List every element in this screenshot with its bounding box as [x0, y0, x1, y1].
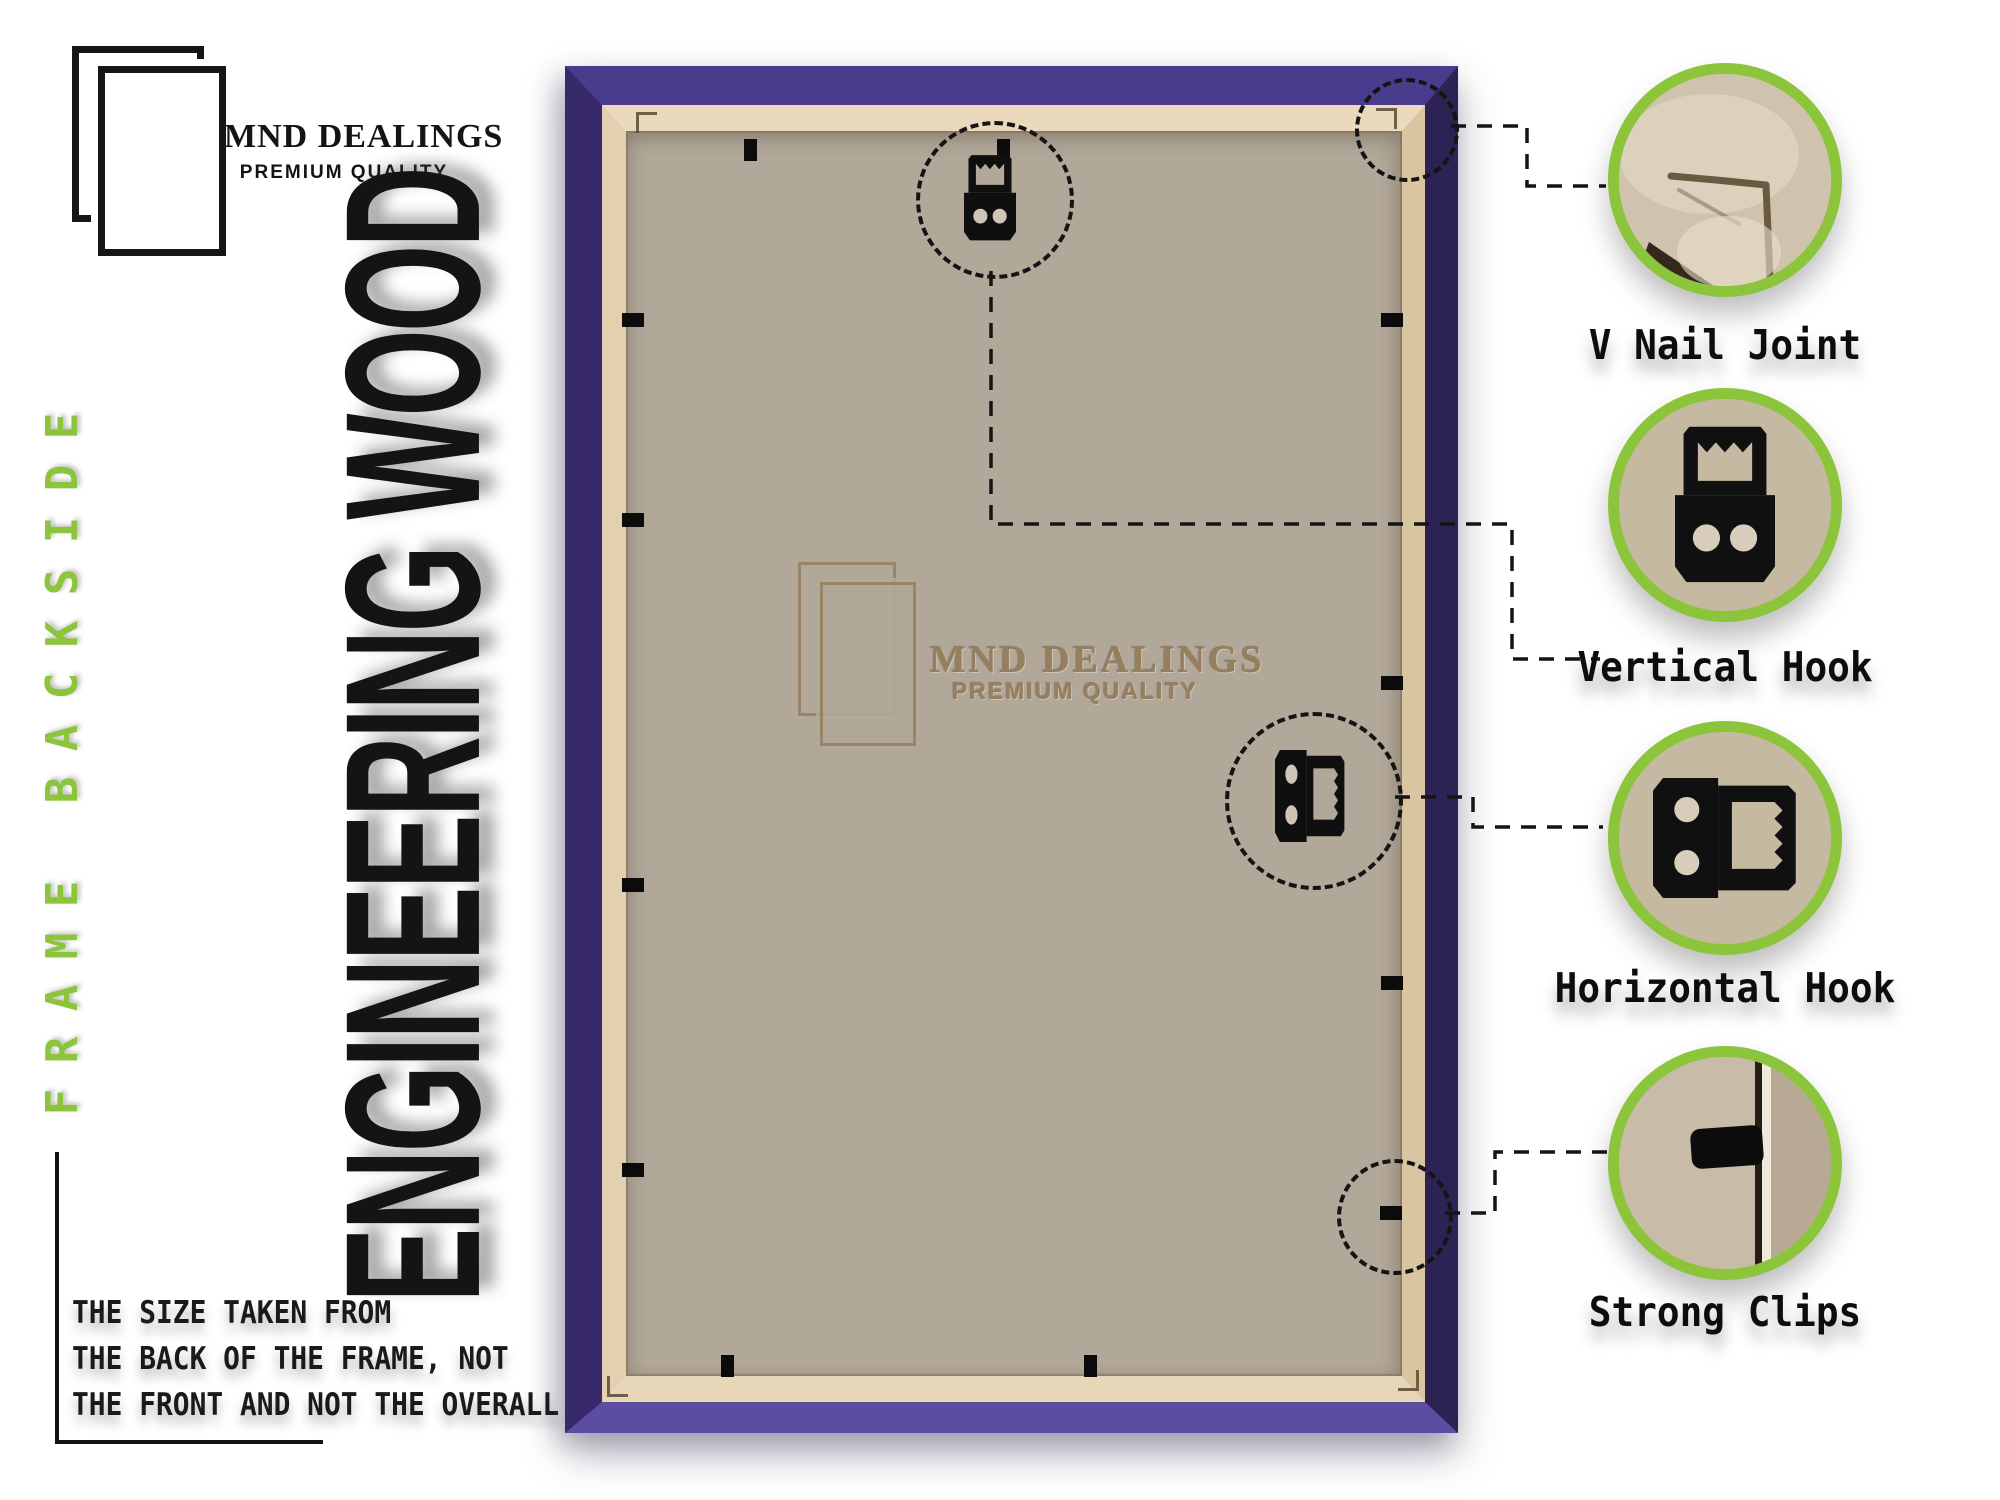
- retainer-clip: [622, 313, 644, 327]
- highlight-circle-vertical-hook: [916, 121, 1074, 279]
- horizontal-hook-photo: [1619, 732, 1831, 944]
- corner-mark-top-left: [636, 112, 657, 133]
- watermark-name: MND DEALINGS: [930, 638, 1265, 682]
- retainer-clip: [1381, 676, 1403, 690]
- clip-tab: [1690, 1124, 1765, 1169]
- watermark-tagline: PREMIUM QUALITY: [930, 678, 1220, 705]
- callout-circle-v-nail-joint: [1608, 63, 1842, 297]
- callout-label-v-nail-joint: V Nail Joint: [1513, 321, 1936, 369]
- corner-mark-bottom-left: [607, 1376, 628, 1397]
- product-infographic: MND DEALINGS PREMIUM QUALITY EDISKCABEMA…: [0, 0, 2000, 1500]
- highlight-circle-strong-clips: [1337, 1159, 1453, 1275]
- callout-circle-strong-clips: [1608, 1046, 1842, 1280]
- highlight-circle-v-nail-joint: [1355, 78, 1459, 182]
- side-label-letter: F: [36, 1070, 88, 1134]
- watermark-front-rect-icon: [820, 582, 916, 746]
- vertical-hook-photo: [1619, 399, 1831, 611]
- v-nail-joint-photo: [1619, 74, 1831, 286]
- frame-gap-line: [1762, 1057, 1771, 1269]
- retainer-clip: [744, 139, 757, 161]
- frame-lip-area: [1771, 1057, 1831, 1269]
- engineering-wood-title: ENGINEERING WOOD: [302, 169, 523, 1302]
- retainer-clip: [622, 878, 644, 892]
- frame-backside-vertical-label: EDISKCABEMARF: [30, 400, 94, 1140]
- callout-label-vertical-hook: Vertical Hook: [1513, 643, 1936, 691]
- callout-circle-horizontal-hook: [1608, 721, 1842, 955]
- logo-front-rect-icon: [98, 66, 226, 256]
- brand-name: MND DEALINGS: [224, 118, 503, 156]
- callout-label-horizontal-hook: Horizontal Hook: [1513, 964, 1936, 1012]
- corner-mark-bottom-right: [1398, 1370, 1419, 1391]
- note-connector-vertical-line: [55, 1152, 59, 1444]
- note-connector-horizontal-line: [55, 1440, 323, 1444]
- callout-circle-vertical-hook: [1608, 388, 1842, 622]
- highlight-circle-horizontal-hook: [1225, 712, 1403, 890]
- retainer-clip: [1084, 1355, 1097, 1377]
- strong-clips-photo: [1619, 1057, 1831, 1269]
- retainer-clip: [1381, 313, 1403, 327]
- retainer-clip: [1381, 976, 1403, 990]
- retainer-clip: [721, 1355, 734, 1377]
- retainer-clip: [622, 513, 644, 527]
- retainer-clip: [622, 1163, 644, 1177]
- callout-label-strong-clips: Strong Clips: [1513, 1288, 1936, 1336]
